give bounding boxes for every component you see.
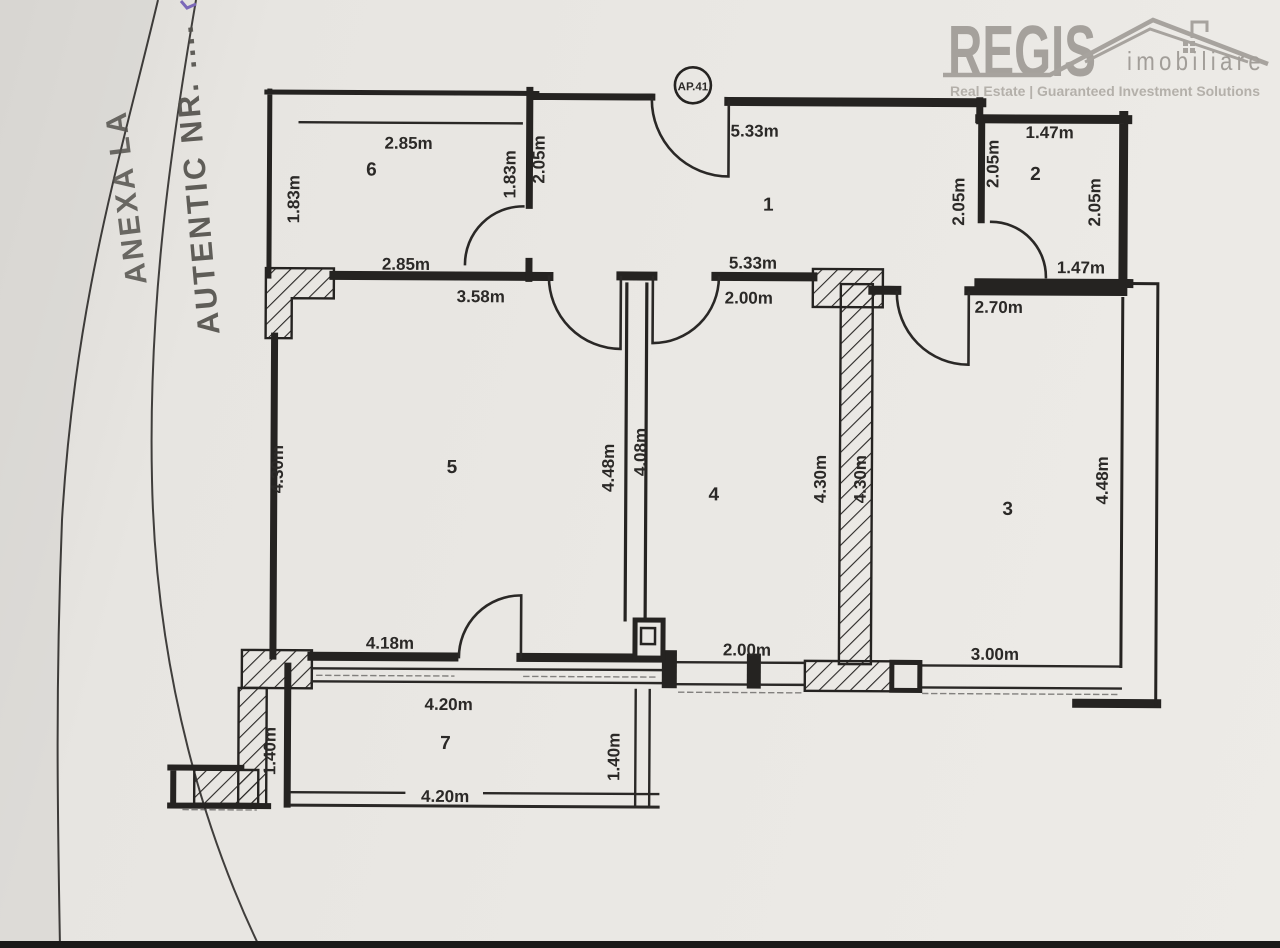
dim-room5-bottom: 4.18m — [366, 634, 414, 653]
dim-room6-bottom: 2.85m — [382, 255, 430, 274]
room-number-6: 6 — [366, 160, 377, 181]
hatched-wall-bottom-pier — [805, 661, 893, 691]
balcony-door-arc — [459, 595, 521, 657]
pipe-shaft — [635, 620, 663, 658]
room-number-1: 1 — [763, 195, 774, 216]
dim-room4-left: 4.08m — [631, 428, 650, 476]
dim-room4-bottom: 2.00m — [723, 640, 771, 659]
hatched-walls — [194, 266, 895, 810]
dim-hall-top: 2.00m — [725, 288, 773, 307]
dim-room3-right: 4.48m — [1093, 456, 1112, 504]
dim-room2-bottom: 1.47m — [1057, 258, 1105, 277]
dim-room2-top: 1.47m — [1026, 123, 1074, 142]
agency-logo: REGIS imobiliare Real Estate | Guarantee… — [943, 12, 1268, 99]
dimension-labels-vertical: 1.83m 1.83m 2.05m 2.05m 2.05m 2.05m 4.30… — [260, 134, 1113, 784]
unit-label: AP.41 — [678, 81, 709, 93]
stamp-autentic-nr: AUTENTIC NR. .... — [164, 22, 226, 337]
room-numbers: 6 1 2 5 4 3 7 — [363, 160, 1041, 758]
dim-room2-right: 2.05m — [1085, 178, 1104, 226]
dim-room3-bottom: 3.00m — [971, 645, 1019, 664]
dim-room1-top: 5.33m — [731, 121, 779, 140]
dim-room3-top: 2.70m — [975, 298, 1023, 317]
walls-thick — [312, 99, 1160, 703]
dim-room6-left: 1.83m — [284, 175, 303, 223]
dim-room7-left: 1.40m — [260, 727, 279, 775]
dim-room5-top: 3.58m — [457, 287, 505, 306]
room-number-2: 2 — [1030, 164, 1041, 185]
dim-room1-right: 2.05m — [949, 178, 968, 226]
dim-room6-top: 2.85m — [384, 134, 432, 153]
dim-room2-left: 2.05m — [983, 140, 1002, 188]
room2-door-arc — [991, 222, 1046, 277]
walls-right-double — [1121, 284, 1158, 704]
dim-room1-bottom: 5.33m — [729, 253, 777, 272]
floorplan-drawing: ANEXA LA AUTENTIC NR. .... REGIS imobili… — [0, 0, 1280, 948]
walls-room6-outer — [266, 91, 537, 277]
hatched-step — [194, 770, 258, 804]
dim-room4-right: 4.30m — [811, 455, 830, 503]
dim-room5-left: 4.30m — [268, 445, 287, 493]
room-number-5: 5 — [447, 457, 458, 478]
entry-door-arc — [651, 99, 728, 176]
room5-door-arc — [549, 277, 621, 349]
room4-door-arc — [653, 277, 719, 343]
ink-mark — [181, 1, 196, 8]
balcony-bottom-line — [291, 805, 658, 807]
room-number-4: 4 — [708, 484, 719, 505]
room-number-3: 3 — [1002, 499, 1013, 520]
logo-tagline: Real Estate | Guaranteed Investment Solu… — [950, 84, 1260, 99]
dim-room5-right: 4.48m — [599, 444, 618, 492]
dim-room7-right: 1.40m — [604, 733, 623, 781]
window-lines — [291, 122, 1124, 809]
logo-brand-text: REGIS — [948, 12, 1096, 92]
dim-room1-left: 2.05m — [529, 135, 548, 183]
hatched-wall-room5-topleft — [266, 268, 334, 338]
dim-room6-right: 1.83m — [500, 150, 519, 198]
floorplan: AP.41 6 1 2 5 4 3 7 2.85m 2.85m 5.33m 5.… — [170, 65, 1160, 815]
hatched-wall-bottomleft-corner — [242, 650, 312, 688]
logo-sub-text: imobiliare — [1127, 46, 1265, 76]
dim-room7-bottom: 4.20m — [421, 787, 469, 806]
room6-door-arc — [465, 206, 523, 264]
room-number-7: 7 — [440, 733, 451, 754]
scanned-floorplan-page: ANEXA LA AUTENTIC NR. .... REGIS imobili… — [0, 0, 1280, 948]
room3-door-arc — [896, 292, 968, 364]
dim-room3-left: 4.30m — [851, 455, 870, 503]
scan-bottom-edge — [0, 941, 1280, 948]
dim-room7-top: 4.20m — [425, 695, 473, 714]
wall-pier-box — [892, 662, 920, 690]
